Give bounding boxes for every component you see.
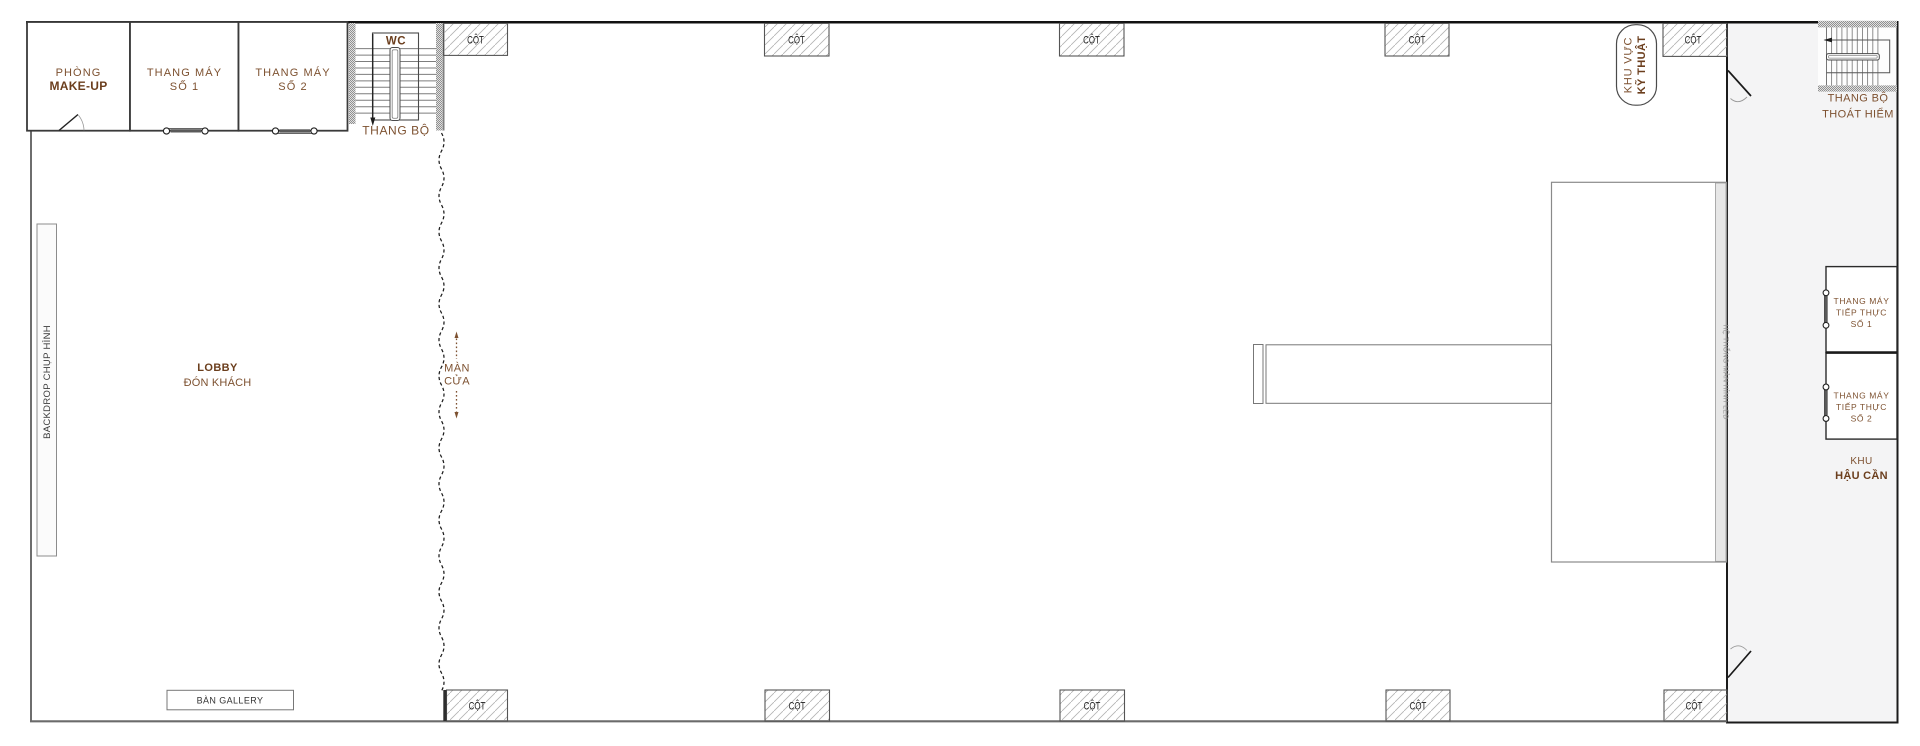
svg-text:THANG BỘ: THANG BỘ [1828,92,1889,105]
svg-text:CỘT: CỘT [1083,34,1100,47]
svg-text:BACKDROP CHỤP HÌNH: BACKDROP CHỤP HÌNH [42,325,53,439]
svg-text:WC: WC [386,36,406,48]
svg-text:KHU: KHU [1850,456,1872,467]
svg-text:THANG MÁY: THANG MÁY [147,66,222,79]
svg-text:ĐÓN KHÁCH: ĐÓN KHÁCH [184,376,252,389]
svg-text:SỐ 1: SỐ 1 [170,79,199,93]
svg-text:CỘT: CỘT [789,700,806,713]
svg-text:THANG BỘ: THANG BỘ [362,123,429,138]
svg-text:LOBBY: LOBBY [197,362,238,374]
svg-text:BÀN GALLERY: BÀN GALLERY [197,696,264,706]
svg-text:CỬA: CỬA [444,375,470,388]
svg-text:KHU VỰC: KHU VỰC [1623,37,1635,94]
svg-text:TIẾP THỰC: TIẾP THỰC [1836,308,1887,318]
svg-text:MÀN: MÀN [444,362,470,375]
svg-text:SỐ 2: SỐ 2 [1851,413,1873,424]
svg-text:THANG MÁY: THANG MÁY [255,66,330,79]
svg-text:CỘT: CỘT [1686,700,1703,713]
svg-text:CỘT: CỘT [1084,700,1101,713]
svg-text:THANG MÁY: THANG MÁY [1834,391,1890,401]
svg-text:THOÁT HIỂM: THOÁT HIỂM [1822,108,1894,121]
svg-text:THANG MÁY: THANG MÁY [1834,296,1890,306]
svg-text:CỘT: CỘT [469,700,486,713]
svg-text:MAKE-UP: MAKE-UP [49,79,107,93]
svg-text:SỐ 1: SỐ 1 [1851,318,1873,329]
svg-text:PHÒNG: PHÒNG [56,66,102,79]
svg-text:HẬU CẦN: HẬU CẦN [1835,469,1888,482]
svg-text:CỘT: CỘT [1685,34,1702,47]
svg-text:CỘT: CỘT [788,34,805,47]
svg-text:CỘT: CỘT [1410,700,1427,713]
svg-text:TIẾP THỰC: TIẾP THỰC [1836,402,1887,412]
svg-text:KỸ THUẬT: KỸ THUẬT [1635,36,1648,95]
svg-text:CỘT: CỘT [1409,34,1426,47]
svg-text:SỐ 2: SỐ 2 [278,79,307,93]
svg-text:CỘT: CỘT [467,34,484,47]
